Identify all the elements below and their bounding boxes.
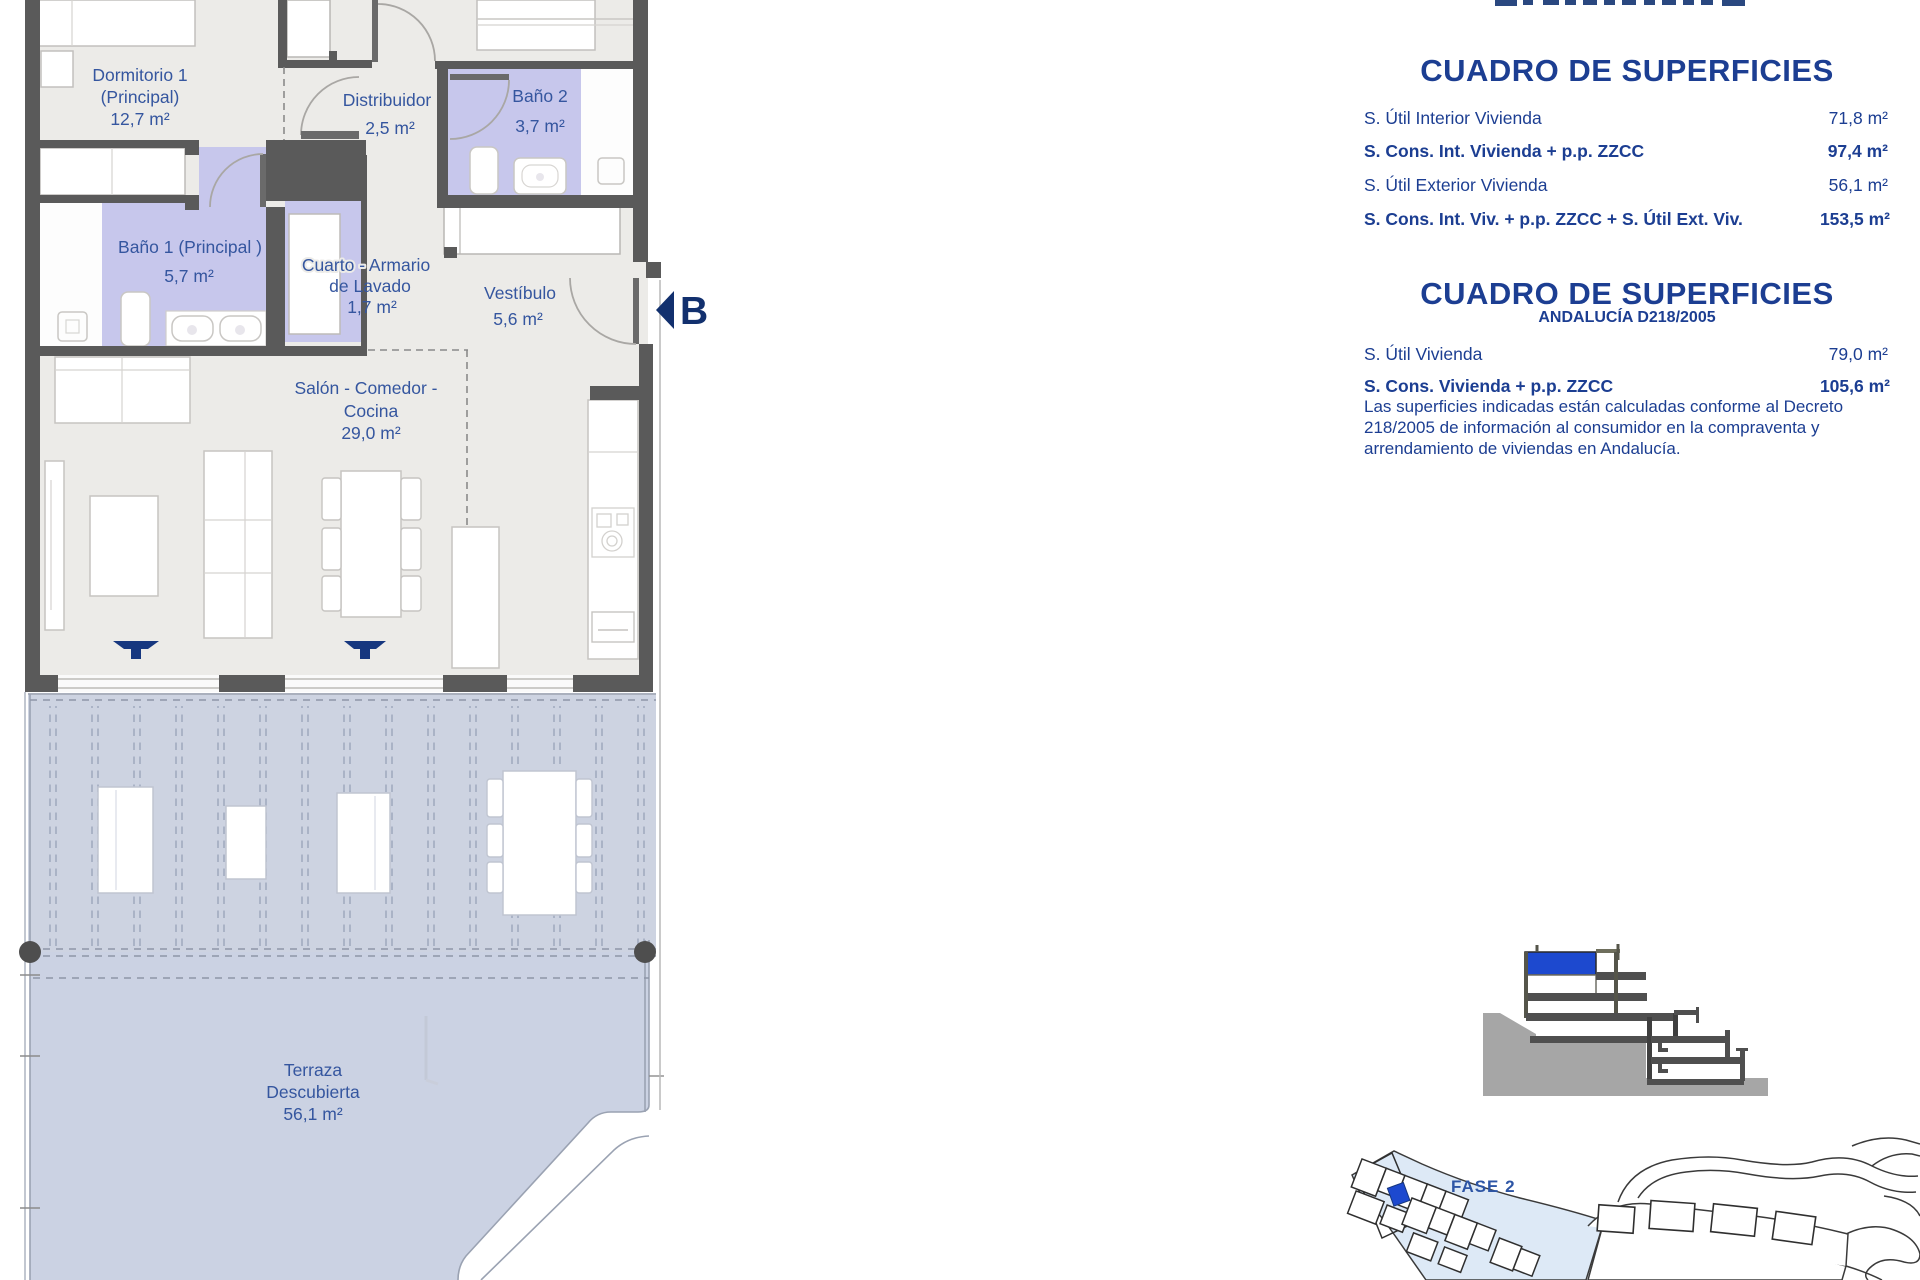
svg-text:105,6 m²: 105,6 m² <box>1820 376 1890 396</box>
svg-text:Cuarto - Armario: Cuarto - Armario <box>302 255 430 275</box>
svg-text:S. Cons. Vivienda + p.p. ZZCC: S. Cons. Vivienda + p.p. ZZCC <box>1364 376 1613 396</box>
svg-text:29,0 m²: 29,0 m² <box>341 423 400 443</box>
svg-text:1,7 m²: 1,7 m² <box>347 297 397 317</box>
svg-text:2,5 m²: 2,5 m² <box>365 118 415 138</box>
svg-text:CUADRO DE SUPERFICIES: CUADRO DE SUPERFICIES <box>1420 276 1834 311</box>
svg-text:Dormitorio 1: Dormitorio 1 <box>92 65 187 85</box>
svg-text:S. Útil Vivienda: S. Útil Vivienda <box>1364 343 1483 364</box>
svg-text:B: B <box>680 290 708 333</box>
svg-text:12,7 m²: 12,7 m² <box>110 109 169 129</box>
svg-text:S. Cons. Int. Vivienda + p.p.: S. Cons. Int. Vivienda + p.p. ZZCC <box>1364 141 1645 161</box>
svg-text:5,6 m²: 5,6 m² <box>493 309 543 329</box>
svg-text:Descubierta: Descubierta <box>266 1082 360 1102</box>
svg-text:S. Útil Interior Vivienda: S. Útil Interior Vivienda <box>1364 107 1542 128</box>
svg-text:de Lavado: de Lavado <box>329 276 411 296</box>
svg-text:79,0 m²: 79,0 m² <box>1829 344 1888 364</box>
svg-text:218/2005 de información al con: 218/2005 de información al consumidor en… <box>1364 418 1820 437</box>
svg-text:Terraza: Terraza <box>284 1060 343 1080</box>
svg-text:arrendamiento de viviendas en: arrendamiento de viviendas en Andalucía. <box>1364 439 1681 458</box>
svg-text:Salón - Comedor -: Salón - Comedor - <box>295 378 438 398</box>
svg-text:3,7 m²: 3,7 m² <box>515 116 565 136</box>
svg-text:Baño 2: Baño 2 <box>512 86 567 106</box>
svg-text:FASE 2: FASE 2 <box>1451 1177 1516 1196</box>
svg-text:Las superficies indicadas está: Las superficies indicadas están calculad… <box>1364 397 1843 416</box>
svg-text:5,7 m²: 5,7 m² <box>164 266 214 286</box>
svg-text:56,1 m²: 56,1 m² <box>283 1104 342 1124</box>
svg-text:S. Útil Exterior Vivienda: S. Útil Exterior Vivienda <box>1364 174 1548 195</box>
svg-text:97,4 m²: 97,4 m² <box>1828 141 1888 161</box>
svg-text:Vestíbulo: Vestíbulo <box>484 283 556 303</box>
svg-text:71,8 m²: 71,8 m² <box>1829 108 1888 128</box>
svg-text:Distribuidor: Distribuidor <box>343 90 432 110</box>
svg-text:CUADRO DE SUPERFICIES: CUADRO DE SUPERFICIES <box>1420 53 1834 88</box>
svg-text:Baño 1 (Principal ): Baño 1 (Principal ) <box>118 237 262 257</box>
svg-text:(Principal): (Principal) <box>101 87 180 107</box>
svg-text:56,1 m²: 56,1 m² <box>1829 175 1888 195</box>
svg-text:S. Cons. Int. Viv. + p.p. ZZCC: S. Cons. Int. Viv. + p.p. ZZCC + S. Útil… <box>1364 208 1743 229</box>
svg-text:153,5 m²: 153,5 m² <box>1820 209 1890 229</box>
svg-text:ANDALUCÍA D218/2005: ANDALUCÍA D218/2005 <box>1538 307 1715 326</box>
svg-text:Cocina: Cocina <box>344 401 399 421</box>
